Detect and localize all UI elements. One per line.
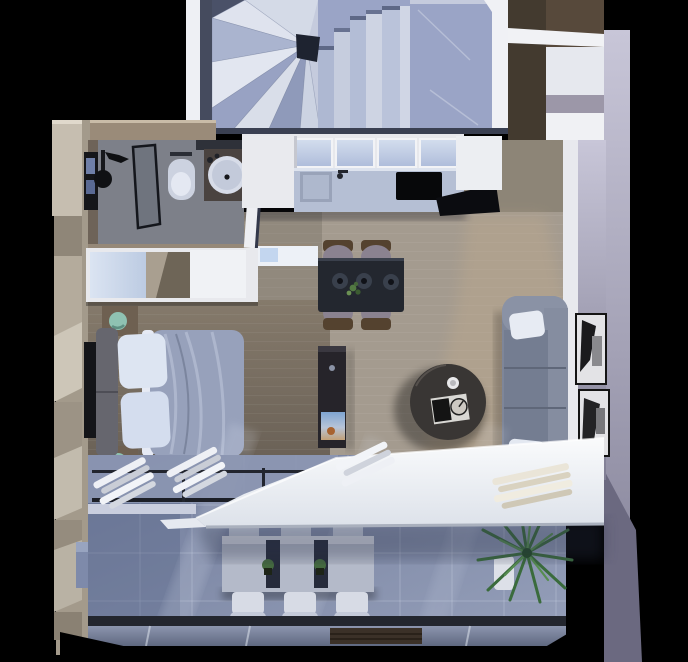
- stair-bottom-shadow: [212, 128, 508, 134]
- floorplan-svg: [0, 0, 688, 662]
- entry-wall-dark: [508, 0, 546, 140]
- sofa-pillow-top: [508, 310, 545, 340]
- wall-art-frame-1: [576, 314, 606, 384]
- pillow-top: [117, 333, 168, 389]
- tray: [431, 394, 470, 425]
- entry-wall-face: [546, 47, 604, 95]
- sofa-seats: [504, 330, 548, 446]
- entry-wall-band: [546, 113, 604, 140]
- faucet-bathroom: [207, 157, 213, 163]
- plates: [332, 273, 399, 290]
- tall-cabinet-right: [456, 136, 502, 190]
- stair-wall-gap-shadow: [200, 0, 212, 132]
- floorplan-render: [0, 0, 688, 662]
- toilet-flush-plate: [170, 152, 192, 156]
- room-kitchen: [242, 134, 502, 216]
- vanity-mirror: [196, 140, 246, 150]
- room-stairwell: [186, 0, 556, 134]
- shower-head: [94, 170, 112, 188]
- faucet-kitchen: [337, 173, 343, 179]
- stair-wall-right: [492, 0, 508, 131]
- balustrade-wood-slat: [330, 628, 422, 644]
- tv-screen: [321, 412, 345, 440]
- glass-balustrade: [88, 626, 566, 646]
- room-entry: [508, 0, 604, 140]
- door-threshold: [88, 504, 196, 514]
- pillow-bottom: [120, 391, 171, 449]
- tv-partition: [318, 346, 354, 450]
- wardrobe-white-door: [190, 250, 246, 298]
- stair-core-dark: [296, 34, 320, 62]
- balcony-rail: [88, 616, 566, 626]
- partition-knob: [329, 365, 335, 371]
- wardrobe-glass-door: [90, 252, 146, 298]
- tall-cabinet-left: [242, 136, 296, 208]
- shower-glass-partition: [133, 145, 160, 228]
- stair-landing: [410, 4, 494, 131]
- bottom-black-band: [88, 646, 566, 662]
- stair-wall-left: [186, 0, 200, 132]
- living-right-wall: [563, 140, 609, 480]
- cooktop: [396, 172, 442, 200]
